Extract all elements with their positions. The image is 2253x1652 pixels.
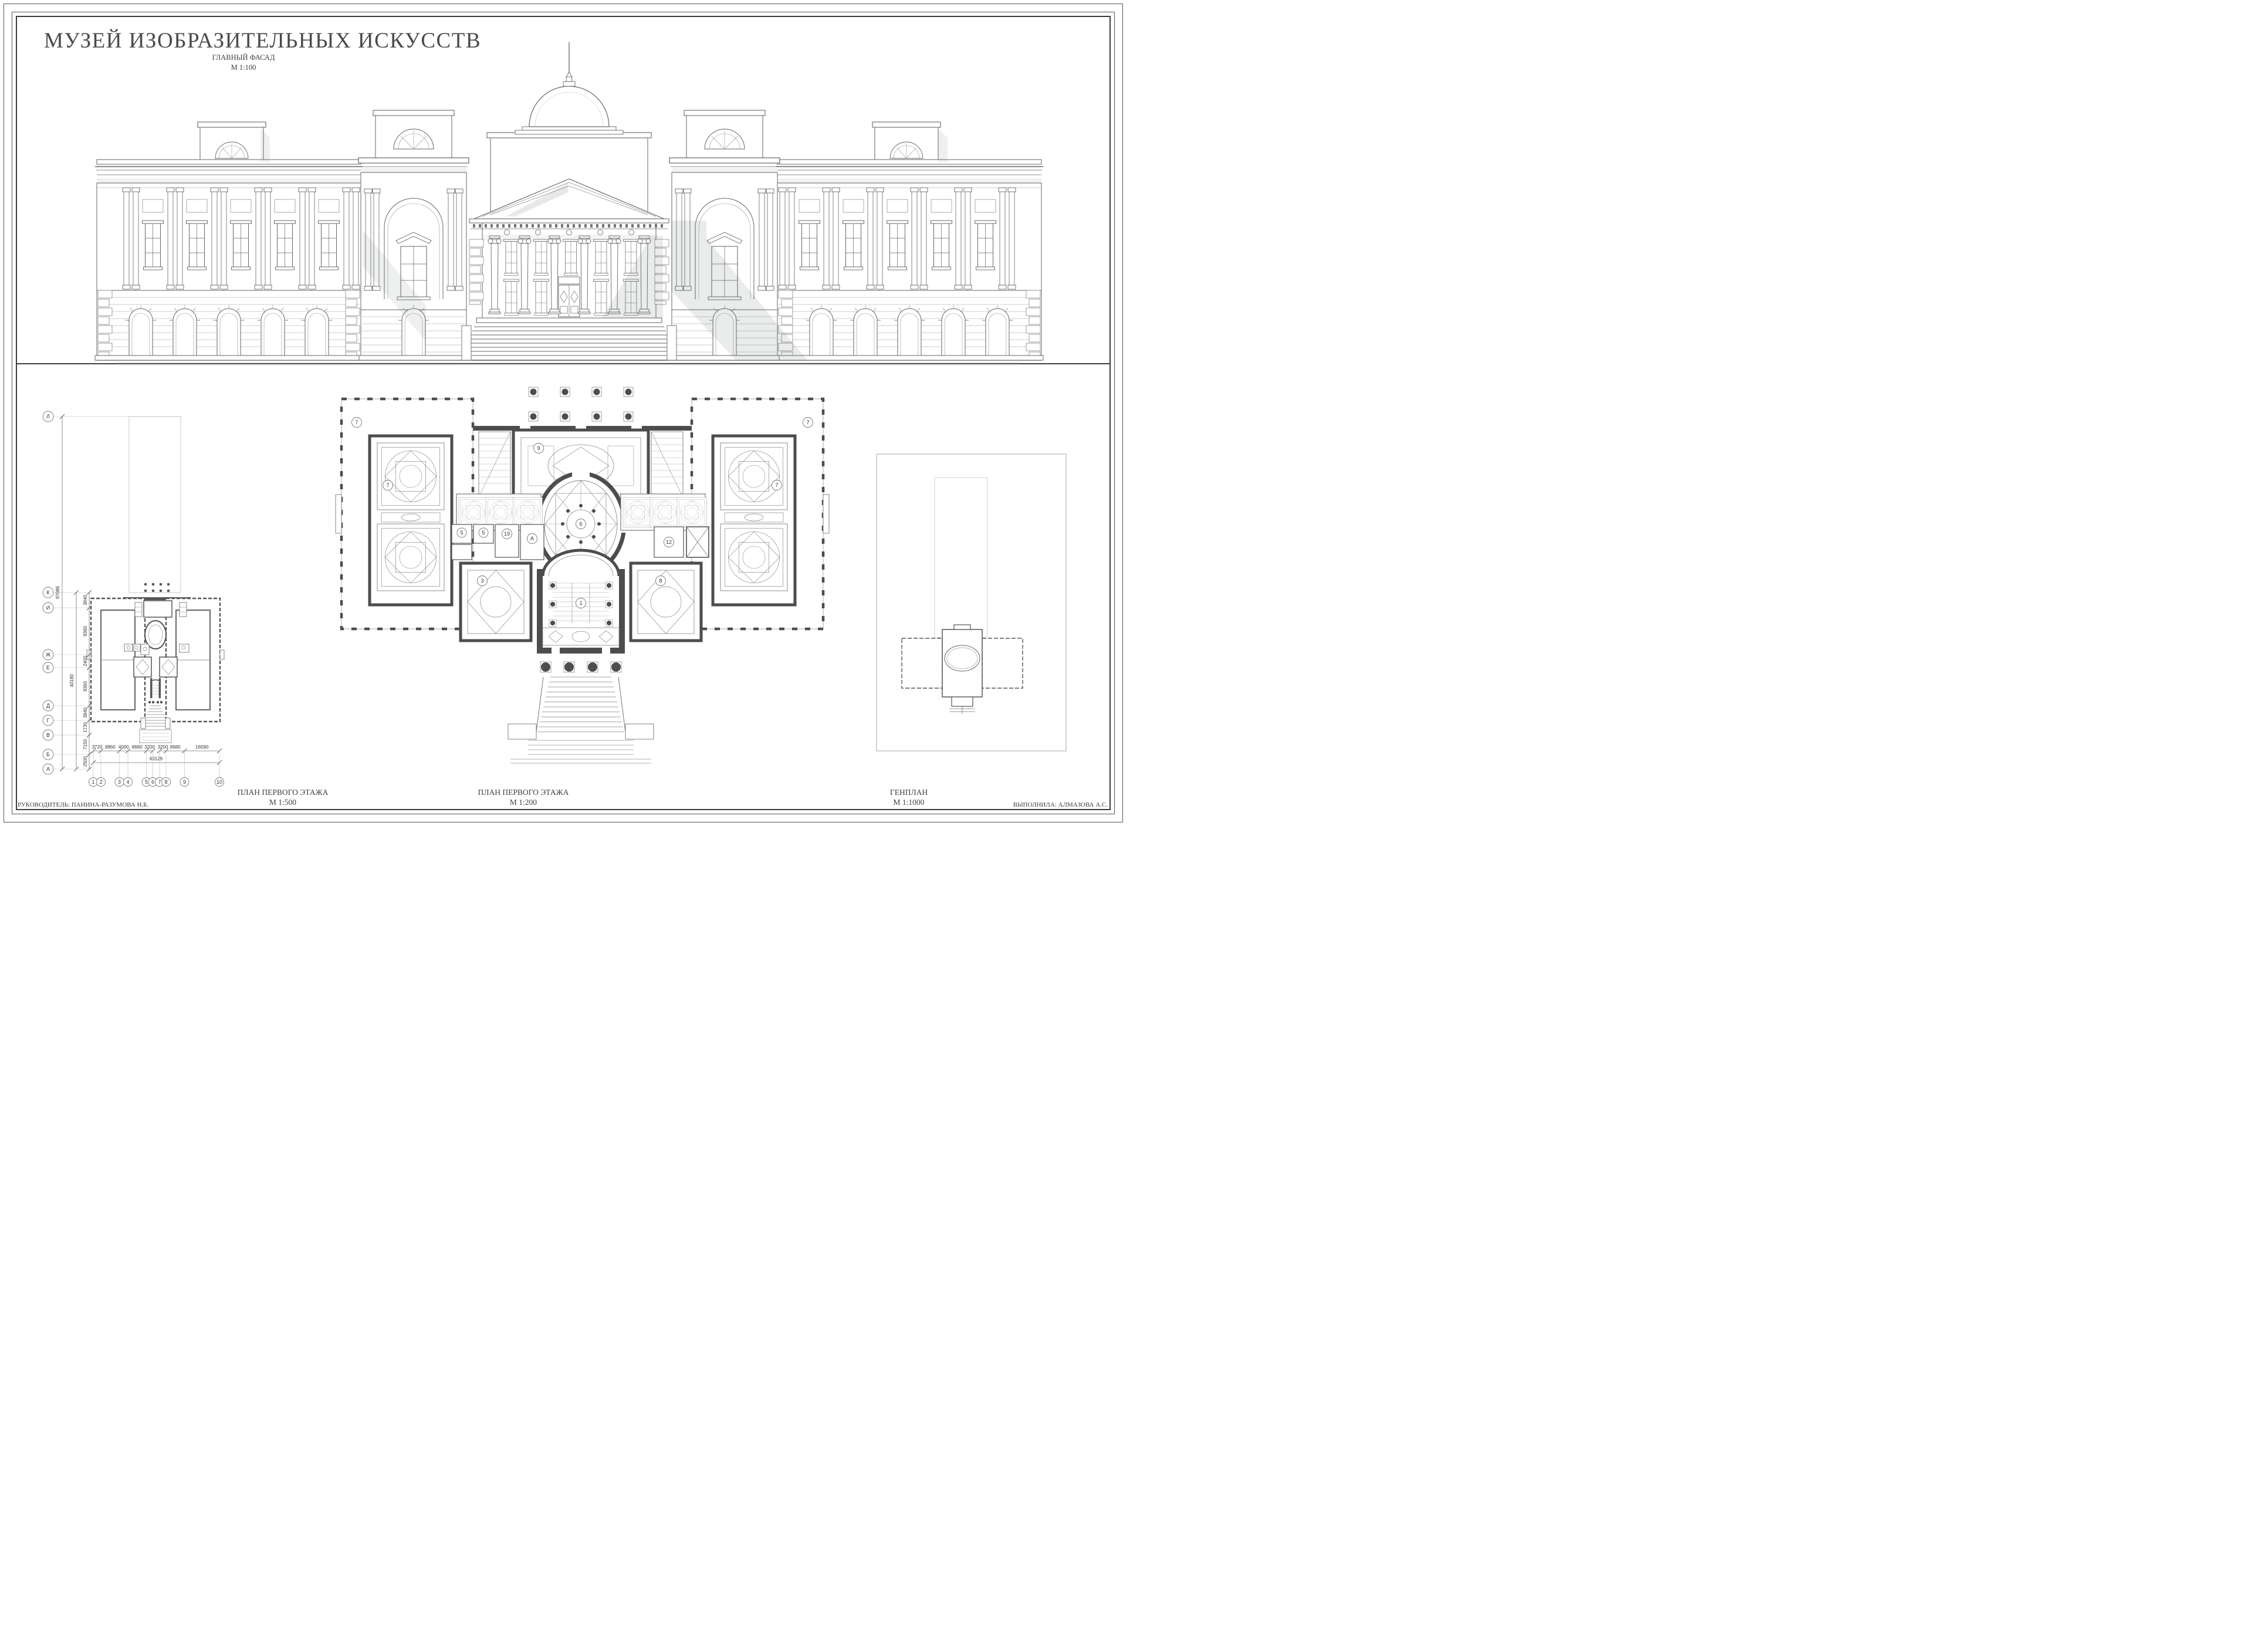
dim-label: 2400 (83, 656, 88, 666)
plan200-room-12 (654, 527, 709, 557)
axis-bubble: К (46, 590, 50, 595)
room-label: 3 (481, 578, 483, 584)
room-label: 7 (386, 482, 389, 488)
dim-label: 4000 (119, 744, 129, 750)
dim-label: 3200 (158, 744, 168, 750)
axis-bubble: 7 (158, 779, 161, 785)
dome-finial (566, 73, 572, 82)
axis-bubble: 9 (183, 779, 186, 785)
plan500-left-dimensions: 97086 40180 3840 9360 2400 9360 3840 173… (55, 414, 92, 771)
room-label: 5 (482, 530, 485, 536)
plan500-label: ПЛАН ПЕРВОГО ЭТАЖА (218, 787, 347, 797)
dim-label: 8680 (170, 744, 181, 750)
dim-label: 2500 (83, 756, 88, 767)
plan200-label: ПЛАН ПЕРВОГО ЭТАЖА (459, 787, 588, 797)
plan200-scale: М 1:200 (459, 797, 588, 807)
dim-label: 7150 (83, 739, 88, 750)
dome (529, 86, 609, 127)
room-label: 19 (504, 531, 510, 537)
entrance-door (559, 277, 580, 317)
dim-label: 3200 (144, 744, 155, 750)
dim-label: 3840 (83, 707, 88, 718)
axis-bubble: 3 (118, 779, 121, 785)
room-label: 7 (775, 482, 778, 488)
genplan-drawing (875, 452, 1070, 754)
axis-bubble: Д (46, 703, 50, 709)
axis-bubble: А (46, 766, 50, 772)
dim-left-total: 40180 (69, 673, 75, 687)
axis-bubble: Л (46, 414, 50, 419)
plan500-scale: М 1:500 (218, 797, 347, 807)
caption-plan200: ПЛАН ПЕРВОГО ЭТАЖА М 1:200 (459, 787, 588, 807)
dim-label: 16590 (195, 744, 209, 750)
axis-bubble: Г (47, 717, 50, 723)
credit-supervisor: РУКОВОДИТЕЛЬ: ПАНИНА-РАЗУМОВА Н.Б. (18, 801, 148, 808)
axis-bubble: И (46, 605, 50, 611)
approach-strip (129, 417, 181, 593)
axis-bubble: 2 (99, 779, 102, 785)
dentils (473, 224, 663, 228)
axis-bubble: 1 (92, 779, 94, 785)
room-label: 7 (806, 419, 809, 425)
axis-bubble: 8 (164, 779, 167, 785)
plan200-hall-3 (461, 563, 531, 641)
dim-label: 8680 (132, 744, 143, 750)
dim-label: 3840 (83, 595, 88, 605)
dim-total: 60129 (150, 756, 163, 761)
credit-author: ВЫПОЛНИЛА: АЛМАЗОВА А.С. (913, 801, 1108, 808)
plan-200-drawing: 7 7 7 7 9 6 5 5 19 А 12 3 8 1 (334, 380, 830, 788)
plan500-building (87, 583, 224, 743)
axis-bubble: В (46, 732, 50, 738)
plan-500-drawing: Л К И Ж Е Д Г В Б А 97086 40180 (35, 404, 311, 791)
plan200-left-wing (336, 399, 473, 629)
caption-plan500: ПЛАН ПЕРВОГО ЭТАЖА М 1:500 (218, 787, 347, 807)
room-label: 5 (460, 530, 463, 536)
plan500-entry-stairs (142, 706, 169, 726)
plan200-rear-colonnade (473, 387, 692, 431)
grand-stair (537, 677, 624, 732)
room-label: 1 (579, 600, 582, 606)
dim-label: 3720 (92, 744, 103, 750)
facade-elevation-drawing (94, 34, 1044, 371)
plan200-hall-8 (631, 563, 701, 641)
room-label: А (530, 536, 534, 541)
axis-bubble: 6 (151, 779, 154, 785)
axis-bubble: Ж (46, 652, 51, 658)
axis-bubble: 10 (216, 779, 222, 785)
plan200-entry-porch (508, 662, 654, 763)
plan500-horizontal-axes: 1 2 3 4 5 6 7 8 9 10 (89, 778, 224, 787)
plan500-bottom-dimensions: 3720 8860 4000 8680 3200 3200 8680 16590… (89, 744, 224, 787)
genplan-label: ГЕНПЛАН (844, 787, 973, 797)
room-label: 12 (666, 539, 672, 545)
portico-steps (462, 327, 676, 356)
dim-label: 9360 (83, 681, 88, 692)
dim-label: 9360 (83, 626, 88, 637)
axis-bubble: 5 (145, 779, 148, 785)
dim-label: 1730 (83, 722, 88, 733)
facade-right-wing (776, 122, 1043, 360)
drawing-sheet: МУЗЕЙ ИЗОБРАЗИТЕЛЬНЫХ ИСКУССТВ ГЛАВНЫЙ Ф… (0, 0, 1126, 826)
axis-bubble: Е (46, 665, 50, 671)
axis-bubble: 4 (126, 779, 129, 785)
room-label: 7 (355, 419, 358, 425)
dim-label: 8860 (105, 744, 116, 750)
dome-lantern-plinth (563, 82, 575, 86)
facade-left-wing (95, 122, 363, 360)
room-label: 9 (537, 445, 540, 451)
dim-overall: 97086 (55, 585, 60, 599)
axis-bubble: Б (46, 751, 50, 757)
plan200-right-wing (692, 399, 829, 629)
room-label: 8 (659, 578, 662, 584)
room-label: 6 (579, 521, 582, 527)
